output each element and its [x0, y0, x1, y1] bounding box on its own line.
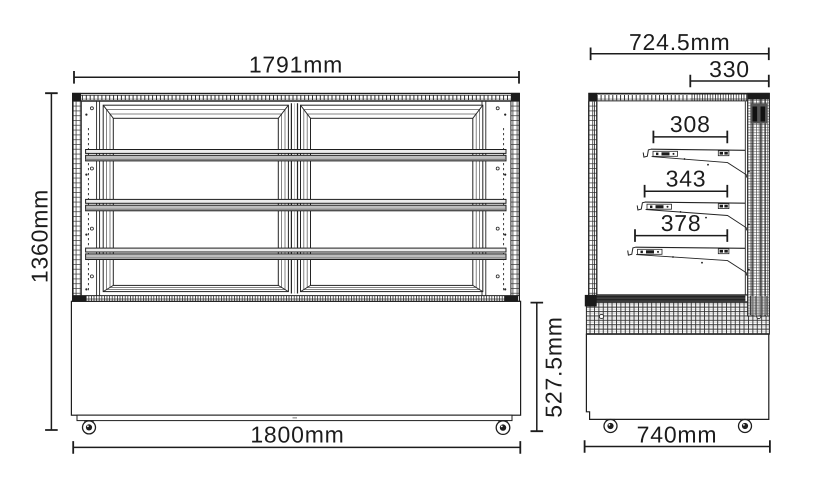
svg-text:724.5mm: 724.5mm: [629, 29, 730, 55]
svg-text:1791mm: 1791mm: [249, 52, 343, 78]
svg-text:740mm: 740mm: [637, 422, 718, 448]
svg-text:308: 308: [670, 111, 711, 137]
svg-text:527.5mm: 527.5mm: [541, 316, 567, 417]
svg-text:1360mm: 1360mm: [26, 189, 52, 283]
svg-text:378: 378: [661, 210, 702, 236]
svg-text:330: 330: [709, 56, 750, 82]
svg-text:343: 343: [666, 166, 707, 192]
svg-text:1800mm: 1800mm: [250, 422, 344, 448]
